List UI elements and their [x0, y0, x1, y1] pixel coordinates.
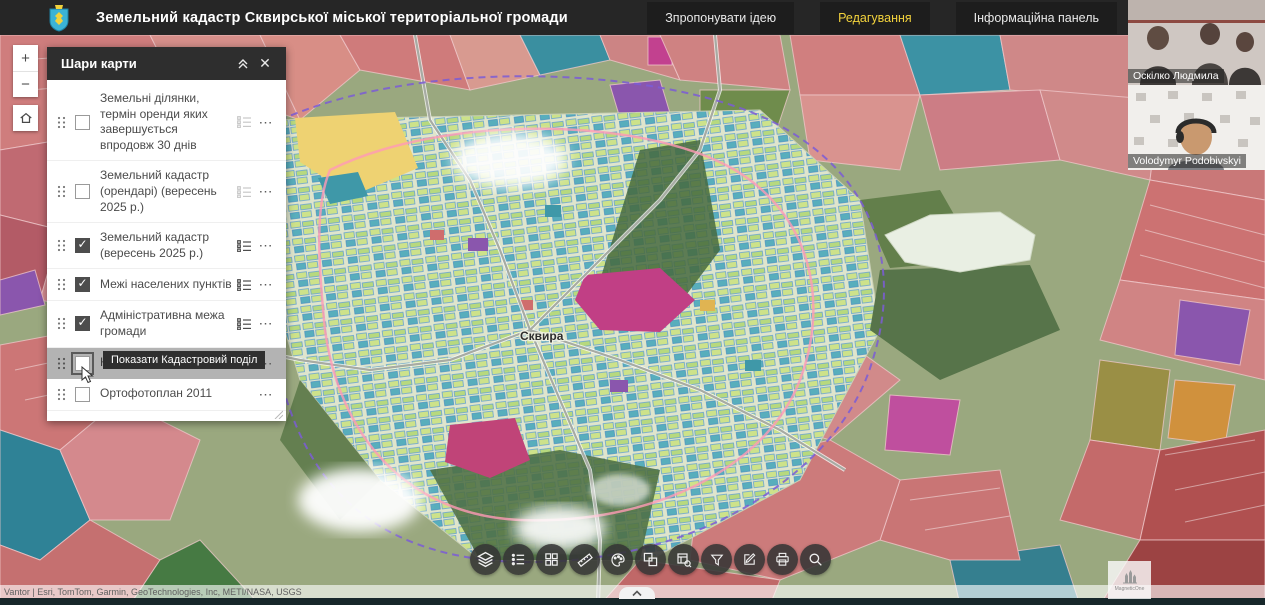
layer-label: Адміністративна межа громади: [100, 308, 234, 339]
checkbox-tooltip: Показати Кадастровий поділ: [103, 351, 265, 369]
edit-pencil-icon: [742, 552, 757, 567]
layer-label: Земельний кадастр (орендарі) (вересень 2…: [100, 168, 234, 215]
layers-icon: [477, 551, 494, 568]
layer-checkbox[interactable]: [75, 316, 90, 331]
layers-panel-body: Земельні ділянки, термін оренди яких зав…: [47, 80, 286, 421]
query-tool-button[interactable]: [668, 544, 699, 575]
watermark-logo-icon: [1121, 569, 1139, 585]
nav-editing[interactable]: Редагування: [820, 2, 930, 34]
collapsed-bottom-panel[interactable]: [0, 598, 1265, 605]
layer-row[interactable]: Адміністративна межа громади ⋯: [47, 301, 286, 347]
layer-options-button[interactable]: ⋯: [254, 315, 278, 332]
header-nav: Зпропонувати ідею Редагування Інформацій…: [647, 2, 1117, 34]
drag-handle-icon[interactable]: [53, 185, 69, 198]
layer-label: Земельний кадастр (вересень 2025 р.): [100, 230, 234, 261]
layers-panel-header: Шари карти ✕: [47, 47, 286, 80]
layer-row[interactable]: Земельний кадастр (орендарі) (вересень 2…: [47, 161, 286, 223]
video-tile[interactable]: Volodymyr Podobivskyi: [1128, 85, 1265, 170]
drag-handle-icon[interactable]: [53, 239, 69, 252]
close-icon: ✕: [259, 55, 271, 72]
map-toolbar: [470, 544, 831, 575]
layer-checkbox[interactable]: [75, 277, 90, 292]
swipe-tool-button[interactable]: [635, 544, 666, 575]
legend-icon[interactable]: [234, 318, 254, 330]
measure-tool-button[interactable]: [569, 544, 600, 575]
legend-icon: [511, 552, 526, 567]
layer-options-button[interactable]: ⋯: [254, 386, 278, 403]
map-zoom-controls: + −: [13, 45, 38, 131]
layer-checkbox[interactable]: [75, 387, 90, 402]
legend-icon[interactable]: [234, 186, 254, 198]
zoom-in-button[interactable]: +: [13, 45, 38, 71]
map-attribution: Vantor | Esri, TomTom, Garmin, GeoTechno…: [0, 587, 302, 597]
nav-propose-idea[interactable]: Зпропонувати ідею: [647, 2, 794, 34]
layer-options-button[interactable]: ⋯: [254, 183, 278, 200]
vendor-watermark: MagneticOne: [1108, 561, 1151, 599]
video-tile[interactable]: Оскілко Людмила: [1128, 0, 1265, 85]
close-panel-button[interactable]: ✕: [254, 53, 276, 75]
expand-panel-tab[interactable]: [619, 587, 655, 599]
layer-label: Ортофотоплан 2011: [100, 386, 254, 402]
palette-icon: [610, 552, 626, 568]
video-call-overlay: Оскілко Людмила Volodymyr Podobivskyi: [1128, 0, 1265, 170]
double-chevron-up-icon: [237, 58, 249, 70]
layer-options-button[interactable]: ⋯: [254, 237, 278, 254]
layer-row[interactable]: Земельні ділянки, термін оренди яких зав…: [47, 84, 286, 161]
magnifier-icon: [808, 552, 823, 567]
layer-options-button[interactable]: ⋯: [254, 276, 278, 293]
participant-name: Volodymyr Podobivskyi: [1128, 154, 1246, 168]
printer-icon: [775, 552, 790, 567]
home-extent-button[interactable]: [13, 105, 38, 131]
participant-name: Оскілко Людмила: [1128, 69, 1224, 83]
filter-funnel-icon: [710, 553, 724, 567]
drag-handle-icon[interactable]: [53, 116, 69, 129]
layers-panel: Шари карти ✕ Земельні ділянки, термін ор…: [47, 47, 286, 421]
app-header: Земельний кадастр Сквирської міської тер…: [0, 0, 1265, 35]
mouse-cursor: [81, 366, 94, 384]
drag-handle-icon[interactable]: [53, 357, 69, 370]
layers-panel-title: Шари карти: [61, 56, 232, 71]
town-label: Сквира: [520, 329, 564, 343]
legend-icon[interactable]: [234, 240, 254, 252]
layer-options-button[interactable]: ⋯: [254, 114, 278, 131]
layer-checkbox[interactable]: [75, 238, 90, 253]
layer-label: Земельні ділянки, термін оренди яких зав…: [100, 91, 234, 153]
edit-tool-button[interactable]: [734, 544, 765, 575]
page-title: Земельний кадастр Сквирської міської тер…: [96, 10, 568, 26]
layer-row[interactable]: Межі населених пунктів ⋯: [47, 269, 286, 301]
layer-checkbox[interactable]: [75, 184, 90, 199]
basemap-grid-icon: [544, 552, 559, 567]
legend-tool-button[interactable]: [503, 544, 534, 575]
basemap-tool-button[interactable]: [536, 544, 567, 575]
legend-icon[interactable]: [234, 279, 254, 291]
application-window: Сквира Земельний кадастр Сквирської місь…: [0, 0, 1265, 605]
zoom-out-button[interactable]: −: [13, 71, 38, 97]
legend-icon[interactable]: [234, 116, 254, 128]
print-tool-button[interactable]: [767, 544, 798, 575]
layer-row[interactable]: Земельний кадастр (вересень 2025 р.) ⋯: [47, 223, 286, 269]
nav-info-panel[interactable]: Інформаційна панель: [956, 2, 1117, 34]
home-icon: [19, 111, 33, 125]
layers-tool-button[interactable]: [470, 544, 501, 575]
table-search-icon: [676, 552, 692, 568]
filter-tool-button[interactable]: [701, 544, 732, 575]
drag-handle-icon[interactable]: [53, 317, 69, 330]
swipe-layers-icon: [643, 552, 658, 567]
draw-tool-button[interactable]: [602, 544, 633, 575]
watermark-text: MagneticOne: [1115, 586, 1145, 592]
drag-handle-icon[interactable]: [53, 388, 69, 401]
collapse-panel-button[interactable]: [232, 53, 254, 75]
layer-checkbox[interactable]: [75, 115, 90, 130]
layer-label: Межі населених пунктів: [100, 277, 234, 293]
ruler-icon: [577, 552, 593, 568]
search-tool-button[interactable]: [800, 544, 831, 575]
panel-resize-handle[interactable]: [273, 409, 283, 419]
drag-handle-icon[interactable]: [53, 278, 69, 291]
chevron-up-icon: [632, 590, 642, 597]
coat-of-arms-logo: [44, 3, 74, 33]
